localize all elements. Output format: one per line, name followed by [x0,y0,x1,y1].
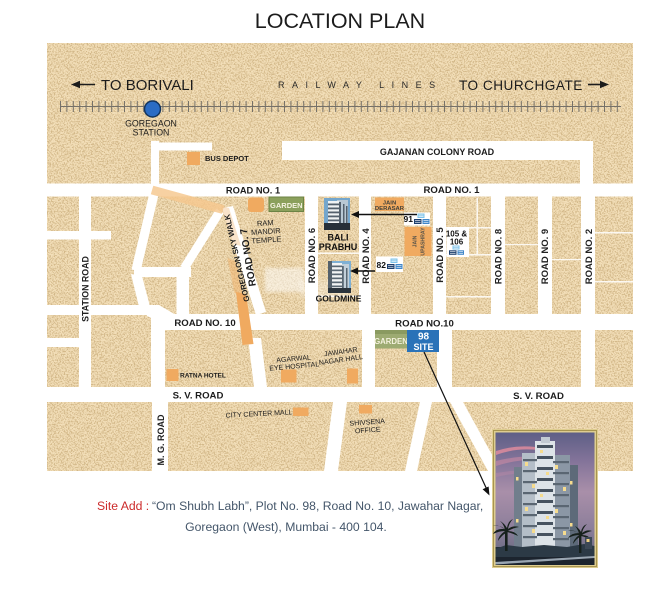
svg-text:ROAD NO. 10: ROAD NO. 10 [174,318,235,329]
svg-text:PRABHU: PRABHU [319,242,358,252]
svg-text:DERASAR: DERASAR [375,206,405,212]
svg-text:SITE: SITE [413,342,433,352]
svg-text:GOLDMINE: GOLDMINE [316,294,362,304]
svg-text:UPASHRAY: UPASHRAY [420,227,426,256]
svg-text:GAJANAN COLONY ROAD: GAJANAN COLONY ROAD [380,147,495,157]
svg-text:GARDEN: GARDEN [374,337,408,346]
svg-text:JAIN: JAIN [412,235,418,247]
svg-text:“Om Shubh Labh”, Plot No. 98,: “Om Shubh Labh”, Plot No. 98, Road No. 1… [152,499,483,513]
svg-text:ROAD NO. 6: ROAD NO. 6 [307,228,318,283]
svg-text:106: 106 [450,238,464,247]
svg-text:S. V. ROAD: S. V. ROAD [513,391,564,402]
svg-text:ROAD NO. 1: ROAD NO. 1 [424,185,481,196]
svg-text:Site Add :: Site Add : [97,499,149,513]
svg-text:ROAD NO. 5: ROAD NO. 5 [435,227,446,283]
svg-text:S. V. ROAD: S. V. ROAD [173,391,224,402]
svg-text:ROAD NO. 9: ROAD NO. 9 [540,229,551,284]
svg-text:RAILWAY LINES: RAILWAY LINES [278,80,443,90]
svg-text:STATION: STATION [133,127,170,137]
svg-text:TO CHURCHGATE: TO CHURCHGATE [459,78,583,93]
svg-text:91: 91 [404,214,414,224]
svg-text:BALI: BALI [328,233,349,243]
svg-text:ROAD NO. 1: ROAD NO. 1 [226,186,280,196]
svg-text:Goregaon (West), Mumbai - 400: Goregaon (West), Mumbai - 400 104. [185,520,387,534]
svg-text:82: 82 [377,260,387,270]
svg-text:ROAD NO. 4: ROAD NO. 4 [361,228,372,284]
svg-text:RATNA HOTEL: RATNA HOTEL [180,373,226,380]
svg-text:M. G. ROAD: M. G. ROAD [156,414,166,465]
svg-text:ROAD NO. 2: ROAD NO. 2 [584,229,595,284]
svg-text:GARDEN: GARDEN [270,201,303,210]
svg-text:TO BORIVALI: TO BORIVALI [101,77,194,94]
svg-text:BUS DEPOT: BUS DEPOT [205,154,249,163]
svg-text:LOCATION PLAN: LOCATION PLAN [255,9,425,33]
svg-text:ROAD NO.10: ROAD NO.10 [395,319,454,330]
svg-text:98: 98 [418,332,430,343]
svg-text:ROAD NO. 8: ROAD NO. 8 [494,229,505,284]
svg-text:STATION ROAD: STATION ROAD [81,256,91,322]
